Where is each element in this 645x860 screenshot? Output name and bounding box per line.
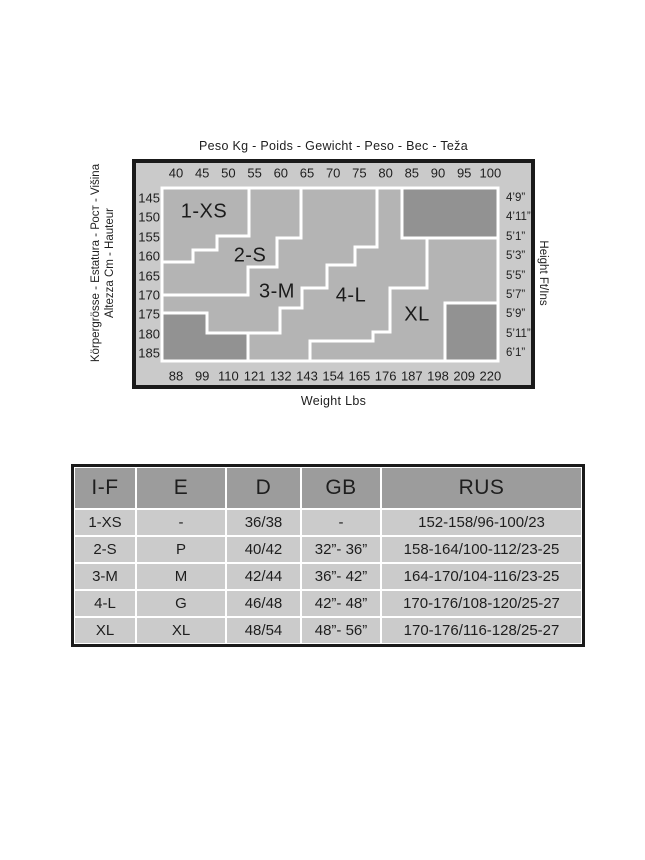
size-table-cell-3-M-I-F: 3-M — [74, 563, 136, 590]
lbs-tick-176: 176 — [375, 369, 397, 384]
kg-tick-100: 100 — [480, 166, 502, 181]
kg-tick-95: 95 — [457, 166, 471, 181]
size-table-cell-2-S-D: 40/42 — [226, 536, 301, 563]
lbs-tick-209: 209 — [453, 369, 475, 384]
kg-tick-40: 40 — [169, 166, 183, 181]
zone-label-2-S: 2-S — [234, 245, 267, 268]
kg-tick-45: 45 — [195, 166, 209, 181]
size-table-cell-XL-I-F: XL — [74, 617, 136, 644]
lbs-tick-88: 88 — [169, 369, 183, 384]
kg-tick-90: 90 — [431, 166, 445, 181]
size-table-row-1-XS: 1-XS-36/38-152-158/96-100/23 — [74, 509, 582, 536]
lbs-tick-220: 220 — [480, 369, 502, 384]
ftin-tick-7: 5’11” — [506, 328, 531, 340]
lbs-tick-143: 143 — [296, 369, 318, 384]
size-table-cell-4-L-E: G — [136, 590, 226, 617]
zone-label-3-M: 3-M — [259, 281, 295, 304]
kg-tick-60: 60 — [274, 166, 288, 181]
size-table-cell-4-L-GB: 42”- 48” — [301, 590, 381, 617]
size-table-header-D: D — [226, 467, 301, 509]
kg-tick-55: 55 — [247, 166, 261, 181]
size-table-row-2-S: 2-SP40/4232”- 36”158-164/100-112/23-25 — [74, 536, 582, 563]
size-table-cell-3-M-E: M — [136, 563, 226, 590]
size-table-cell-XL-D: 48/54 — [226, 617, 301, 644]
cm-tick-180: 180 — [138, 326, 160, 341]
size-table-cell-4-L-I-F: 4-L — [74, 590, 136, 617]
size-table-cell-1-XS-RUS: 152-158/96-100/23 — [381, 509, 582, 536]
size-table-cell-4-L-RUS: 170-176/108-120/25-27 — [381, 590, 582, 617]
size-table-cell-2-S-E: P — [136, 536, 226, 563]
size-table-row-XL: XLXL48/5448”- 56”170-176/116-128/25-27 — [74, 617, 582, 644]
size-table-cell-1-XS-D: 36/38 — [226, 509, 301, 536]
size-table-cell-XL-GB: 48”- 56” — [301, 617, 381, 644]
cm-tick-170: 170 — [138, 287, 160, 302]
size-table-header-row: I-FEDGBRUS — [74, 467, 582, 509]
kg-tick-65: 65 — [300, 166, 314, 181]
lbs-tick-132: 132 — [270, 369, 292, 384]
lbs-tick-99: 99 — [195, 369, 209, 384]
size-table-cell-XL-RUS: 170-176/116-128/25-27 — [381, 617, 582, 644]
lbs-tick-165: 165 — [349, 369, 371, 384]
ftin-tick-6: 5’9” — [506, 308, 525, 320]
zone-label-1-XS: 1-XS — [181, 201, 227, 224]
lbs-tick-110: 110 — [218, 369, 239, 384]
kg-tick-85: 85 — [405, 166, 419, 181]
ftin-tick-0: 4’9” — [506, 192, 525, 204]
ftin-tick-5: 5’7” — [506, 289, 525, 301]
size-table-cell-4-L-D: 46/48 — [226, 590, 301, 617]
ftin-tick-4: 5’5” — [506, 270, 525, 282]
kg-tick-80: 80 — [378, 166, 392, 181]
cm-tick-175: 175 — [138, 307, 160, 322]
size-table-cell-3-M-D: 42/44 — [226, 563, 301, 590]
axis-tick-layer: 4045505560657075808590951008899110121132… — [0, 0, 645, 420]
ftin-tick-2: 5’1” — [506, 231, 525, 243]
ftin-tick-3: 5’3” — [506, 250, 525, 262]
size-table-row-4-L: 4-LG46/4842”- 48”170-176/108-120/25-27 — [74, 590, 582, 617]
ftin-tick-1: 4’11” — [506, 211, 531, 223]
size-table-cell-XL-E: XL — [136, 617, 226, 644]
kg-tick-70: 70 — [326, 166, 340, 181]
cm-tick-155: 155 — [138, 229, 160, 244]
size-table-header-RUS: RUS — [381, 467, 582, 509]
size-table-row-3-M: 3-MM42/4436”- 42”164-170/104-116/23-25 — [74, 563, 582, 590]
size-table-cell-2-S-GB: 32”- 36” — [301, 536, 381, 563]
size-chart-page: Peso Kg - Poids - Gewicht - Peso - Bec -… — [0, 0, 645, 860]
lbs-tick-154: 154 — [322, 369, 344, 384]
size-table-cell-1-XS-GB: - — [301, 509, 381, 536]
size-table-cell-3-M-RUS: 164-170/104-116/23-25 — [381, 563, 582, 590]
size-table-header-I-F: I-F — [74, 467, 136, 509]
zone-label-XL: XL — [404, 304, 429, 327]
size-table: I-FEDGBRUS 1-XS-36/38-152-158/96-100/232… — [74, 467, 582, 644]
right-axis-label: Height Ft/Ins — [535, 228, 549, 318]
size-table-wrap: I-FEDGBRUS 1-XS-36/38-152-158/96-100/232… — [71, 464, 585, 647]
lbs-tick-187: 187 — [401, 369, 423, 384]
ftin-tick-8: 6’1” — [506, 347, 525, 359]
zone-label-4-L: 4-L — [336, 285, 366, 308]
size-table-cell-1-XS-E: - — [136, 509, 226, 536]
kg-tick-50: 50 — [221, 166, 235, 181]
size-table-header-GB: GB — [301, 467, 381, 509]
size-table-cell-1-XS-I-F: 1-XS — [74, 509, 136, 536]
size-table-cell-2-S-RUS: 158-164/100-112/23-25 — [381, 536, 582, 563]
cm-tick-165: 165 — [138, 268, 160, 283]
lbs-tick-121: 121 — [244, 369, 266, 384]
cm-tick-145: 145 — [138, 191, 160, 206]
size-table-cell-3-M-GB: 36”- 42” — [301, 563, 381, 590]
cm-tick-160: 160 — [138, 249, 160, 264]
chart-bottom-axis-title: Weight Lbs — [132, 394, 535, 408]
size-table-header-E: E — [136, 467, 226, 509]
cm-tick-185: 185 — [138, 346, 160, 361]
cm-tick-150: 150 — [138, 210, 160, 225]
lbs-tick-198: 198 — [427, 369, 449, 384]
size-table-cell-2-S-I-F: 2-S — [74, 536, 136, 563]
kg-tick-75: 75 — [352, 166, 366, 181]
